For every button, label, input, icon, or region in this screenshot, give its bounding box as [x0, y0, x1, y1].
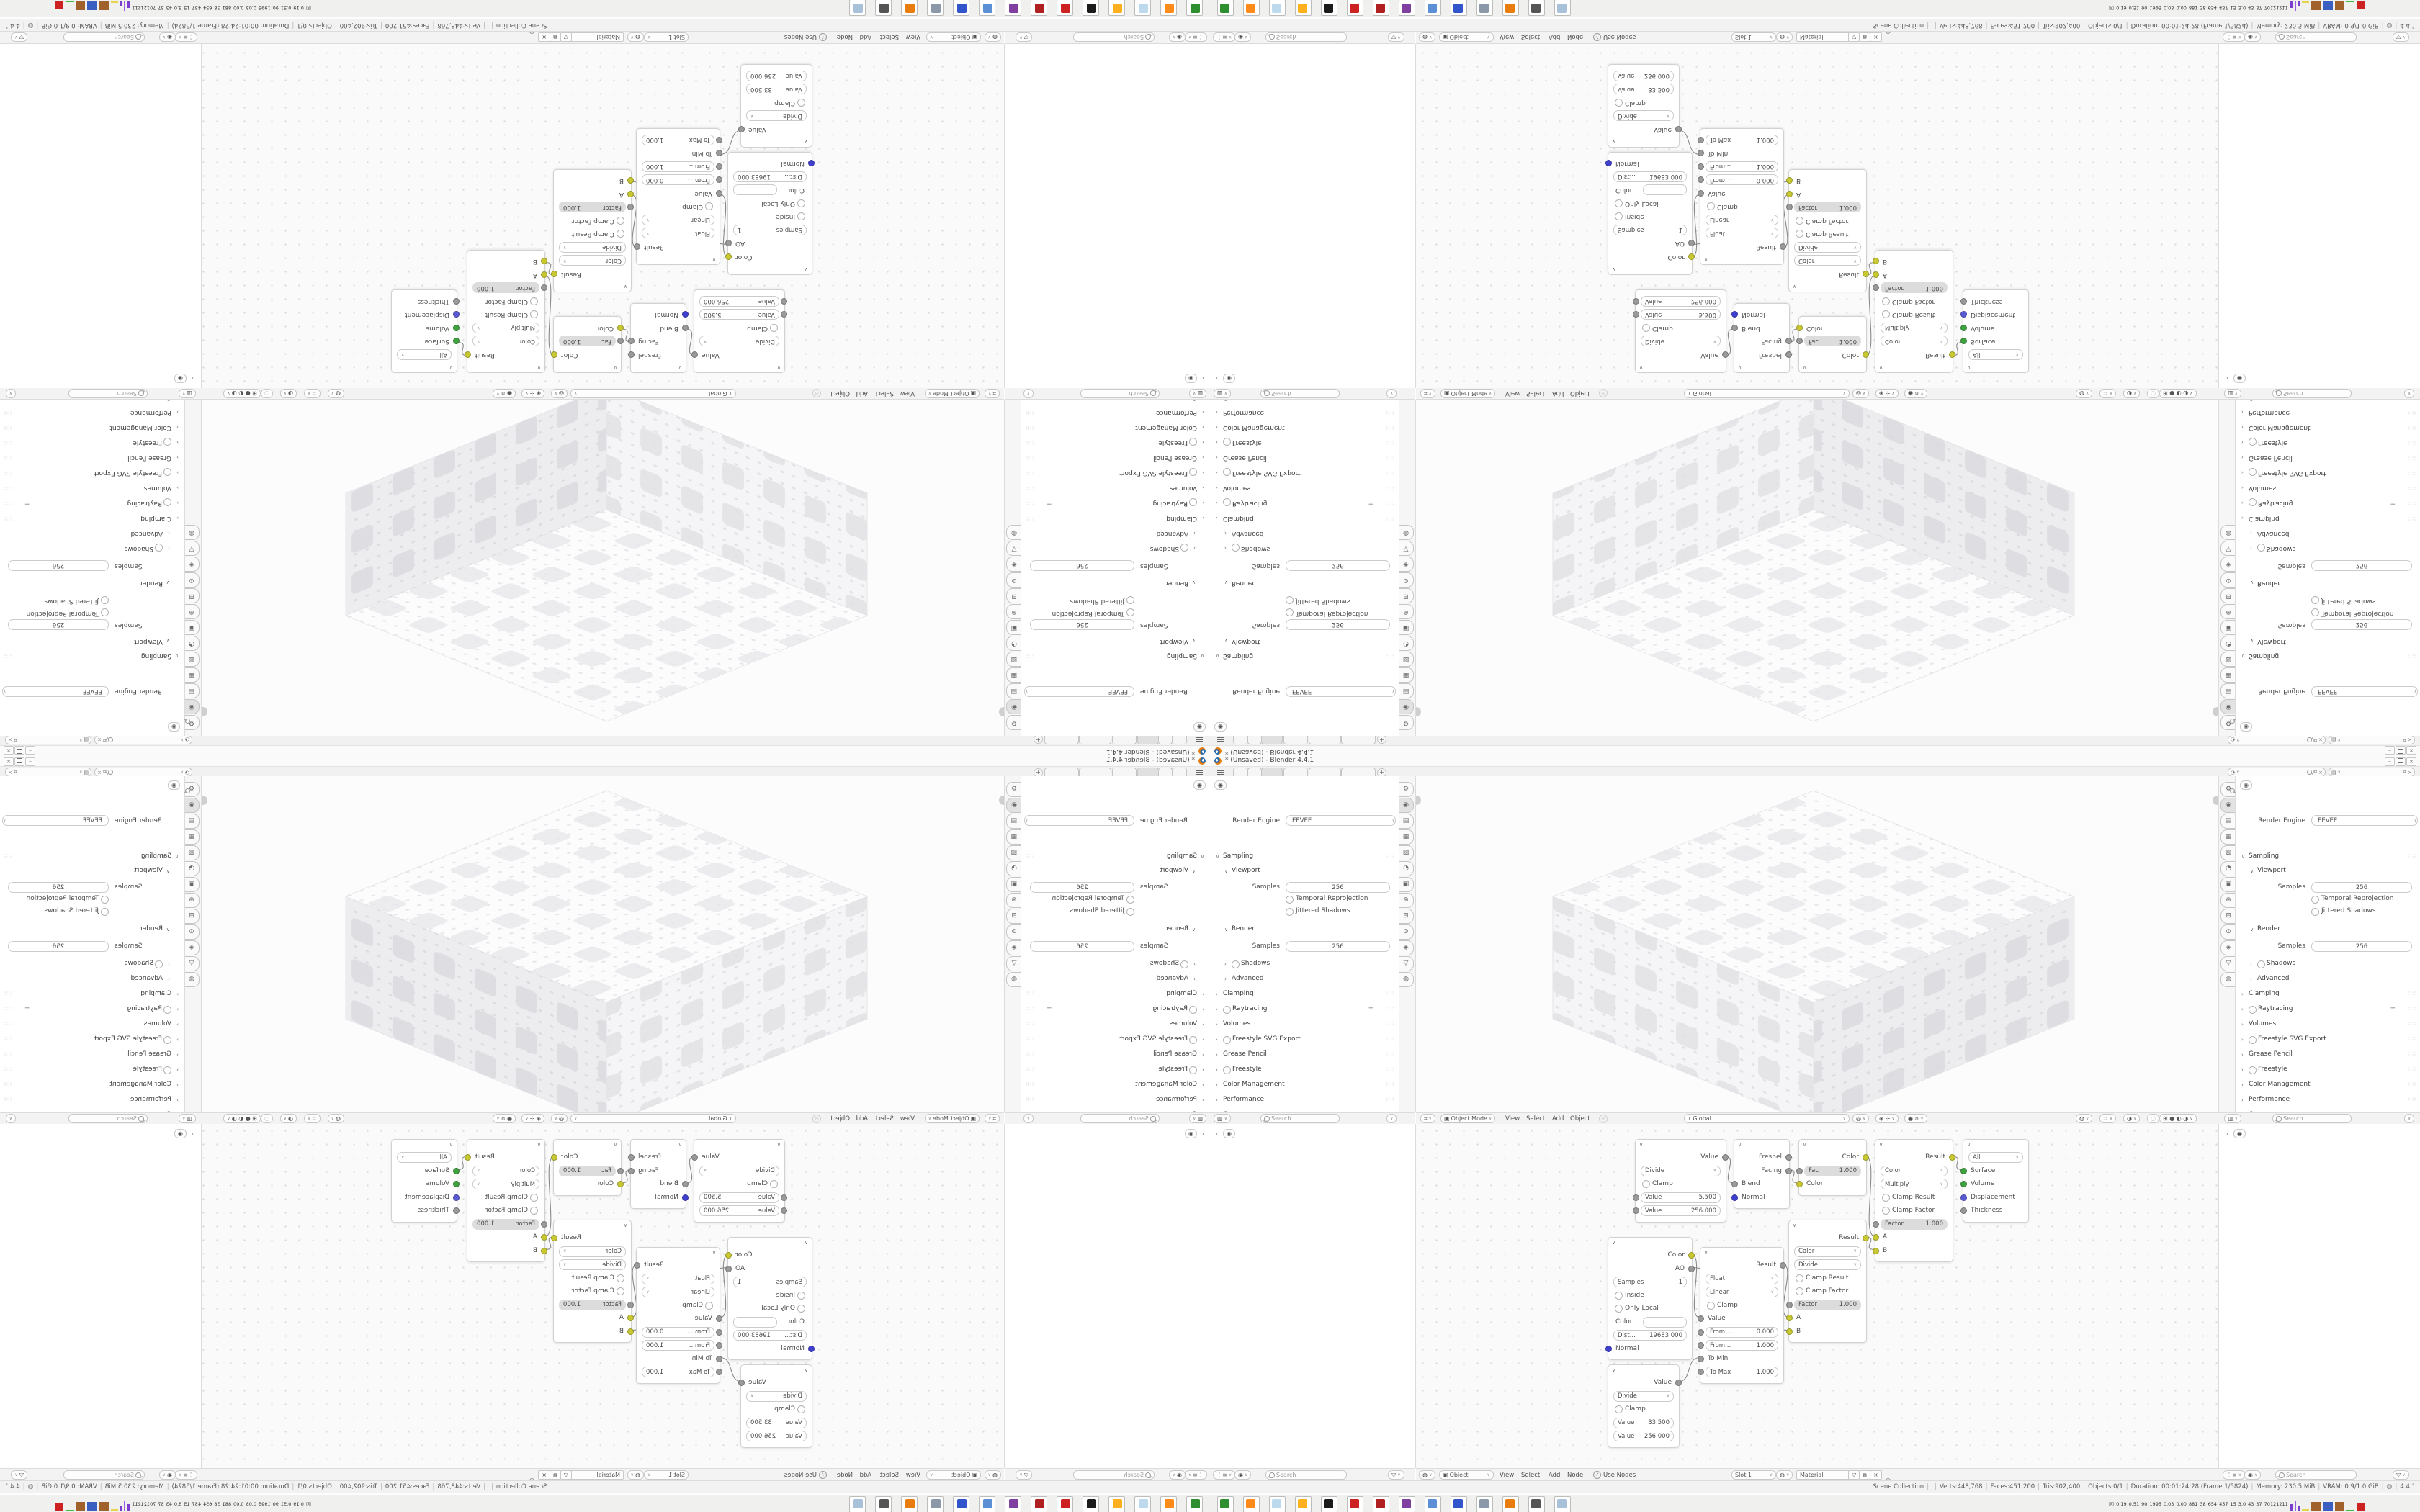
socket-input-blend[interactable]	[1731, 1181, 1738, 1187]
properties-tab-material[interactable]: ◍	[184, 972, 200, 987]
menu-select[interactable]: Select	[875, 1115, 894, 1122]
properties-tab-object-data[interactable]: ▽	[184, 541, 200, 556]
node-layer-weight[interactable]: ∨FresnelFacingBlendNormal	[1734, 303, 1790, 373]
gizmos-toggle[interactable]: ⊃∨	[2099, 389, 2116, 398]
expand-arrow-icon[interactable]: ›	[176, 469, 179, 475]
node-value-field[interactable]: Value256.000	[699, 1205, 779, 1216]
render-properties-icon[interactable]: ◉	[1185, 1129, 1197, 1138]
node-dropdown[interactable]: Divide∨	[1641, 336, 1721, 347]
properties-tab-particles[interactable]: ⊟	[2220, 909, 2236, 924]
checkbox[interactable]	[2311, 896, 2319, 904]
menu-select[interactable]: Select	[1526, 1115, 1545, 1122]
expand-arrow-icon[interactable]: ›	[1216, 454, 1218, 460]
node-layer-weight[interactable]: ∨FresnelFacingBlendNormal	[1734, 1139, 1790, 1209]
section-checkbox[interactable]	[163, 1006, 171, 1014]
node-value-field[interactable]: Factor1.000	[472, 283, 539, 294]
editor-type-button[interactable]: ▥∨	[2224, 1114, 2241, 1123]
expand-arrow-icon[interactable]: ›	[192, 1131, 194, 1137]
checkbox[interactable]	[101, 608, 109, 616]
node-collapse-icon[interactable]: ∨	[678, 1142, 682, 1148]
expand-arrow-icon[interactable]: ›	[2241, 515, 2244, 521]
xray-toggle[interactable]: ○	[261, 1114, 273, 1123]
use-nodes-checkbox[interactable]: ✓	[819, 1471, 827, 1479]
minimize-button[interactable]: –	[25, 757, 35, 766]
expand-arrow-icon[interactable]: ›	[2241, 1007, 2244, 1012]
copy-icon[interactable]: ⧉	[2403, 737, 2406, 743]
workspace-tab[interactable]	[1112, 735, 1137, 744]
material-slot-selector[interactable]: Slot 1∨	[644, 1470, 689, 1480]
node-value-field[interactable]: Dist...19683.000	[1613, 171, 1687, 182]
properties-tab-output[interactable]: ▤	[1006, 814, 1021, 829]
expand-arrow-icon[interactable]: ›	[1216, 1037, 1218, 1043]
properties-tab-physics[interactable]: ⊙	[1006, 572, 1021, 588]
menu-add[interactable]: Add	[856, 1115, 868, 1122]
properties-tab-view-layer[interactable]: ▦	[184, 829, 200, 845]
properties-tab-physics[interactable]: ⊙	[184, 572, 200, 588]
menu-node[interactable]: Node	[1567, 33, 1583, 40]
socket-input[interactable]	[1786, 1302, 1793, 1308]
section-checkbox[interactable]	[1223, 1006, 1231, 1014]
properties-tab-view-layer[interactable]: ▦	[1399, 667, 1414, 683]
socket-input[interactable]	[1698, 163, 1704, 170]
socket-output-result[interactable]	[465, 351, 471, 358]
collapse-arrow-icon[interactable]: ∨	[1224, 927, 1228, 932]
filter-button[interactable]: ▽∨	[1388, 1470, 1404, 1480]
node-checkbox[interactable]	[617, 1287, 624, 1295]
taskbar-icon-red-gear[interactable]	[1373, 0, 1389, 16]
section-checkbox[interactable]	[1223, 1036, 1231, 1044]
expand-arrow-icon[interactable]: ›	[1193, 961, 1196, 967]
socket-input-value[interactable]	[716, 190, 722, 197]
expand-arrow-icon[interactable]: ›	[1202, 991, 1204, 997]
expand-arrow-icon[interactable]: ›	[2250, 976, 2252, 982]
material-slot-selector[interactable]: Slot 1∨	[644, 32, 689, 42]
socket-input-to min[interactable]	[1698, 1356, 1704, 1362]
search-input[interactable]: Search	[1073, 1470, 1155, 1480]
taskbar-icon-gimp[interactable]	[1528, 1496, 1545, 1512]
workspace-tab[interactable]	[1283, 735, 1308, 744]
expand-arrow-icon[interactable]: ›	[1202, 485, 1204, 490]
node-collapse-icon[interactable]: ∨	[537, 364, 541, 370]
socket-input-volume[interactable]	[453, 325, 460, 331]
editor-type-button[interactable]: ⋮≡∨	[1185, 32, 1207, 42]
node-value-field[interactable]: Fac1.000	[1804, 1166, 1861, 1176]
section-checkbox[interactable]	[1189, 438, 1197, 446]
expand-arrow-icon[interactable]: ›	[2250, 530, 2252, 536]
expand-arrow-icon[interactable]: ›	[1224, 961, 1227, 967]
socket-output-result[interactable]	[1780, 1262, 1786, 1269]
properties-tab-scene[interactable]: ▧	[2220, 845, 2236, 860]
expand-arrow-icon[interactable]: ›	[176, 1097, 179, 1103]
node-math-divide-2[interactable]: ∨ValueDivide∨ClampValue33.500Value256.00…	[740, 1364, 812, 1448]
mode-selector[interactable]: ▣ Object Mode∨	[1440, 389, 1495, 398]
properties-tab-object-data[interactable]: ▽	[1399, 541, 1414, 556]
editor-type-button[interactable]: ◍∨	[1419, 32, 1435, 42]
node-layer-weight[interactable]: ∨FresnelFacingBlendNormal	[630, 1139, 686, 1209]
node-checkbox[interactable]	[705, 1302, 713, 1310]
close-button[interactable]: ×	[4, 746, 14, 755]
properties-tab-view-layer[interactable]: ▦	[1006, 829, 1021, 845]
node-value-field[interactable]: Factor1.000	[559, 202, 626, 213]
expand-arrow-icon[interactable]: ›	[2241, 409, 2244, 415]
socket-output-fresnel[interactable]	[1785, 351, 1792, 358]
shader-editor[interactable]: ∨ValueDivide∨ClampValue5.500Value256.000…	[202, 1124, 1004, 1468]
node-dropdown[interactable]: All∨	[1968, 349, 2023, 360]
node-value-field[interactable]: Fac1.000	[1804, 336, 1861, 347]
workspace-tab[interactable]	[1079, 735, 1111, 744]
socket-output-value[interactable]	[1675, 126, 1682, 132]
taskbar-icon-floppy-64[interactable]	[1451, 0, 1467, 16]
socket-input[interactable]	[716, 1329, 722, 1336]
expand-arrow-icon[interactable]: ›	[2226, 1131, 2228, 1137]
node-checkbox[interactable]	[797, 1292, 805, 1300]
collapse-arrow-icon[interactable]: ∨	[1224, 580, 1228, 585]
search-input[interactable]: Search	[1080, 389, 1160, 398]
socket-input-normal[interactable]	[808, 161, 815, 167]
proportional-editing-selector[interactable]: ◉ ∩∨	[1904, 389, 1927, 398]
node-value-field[interactable]: Value33.500	[746, 84, 807, 95]
node-mix-multiply[interactable]: ∨ResultColor∨Multiply∨Clamp ResultClamp …	[467, 250, 545, 373]
checkbox[interactable]	[1126, 596, 1134, 604]
node-collapse-icon[interactable]: ∨	[805, 1240, 808, 1246]
socket-input-surface[interactable]	[453, 338, 460, 345]
taskbar-icon-terminal[interactable]	[1186, 1496, 1203, 1512]
viewport-3d[interactable]	[1416, 400, 2218, 736]
editor-type-button[interactable]: ▥∨	[179, 1114, 196, 1123]
expand-arrow-icon[interactable]: ›	[1224, 976, 1227, 982]
collapse-arrow-icon[interactable]: ∨	[175, 652, 179, 658]
node-value-field[interactable]: To Max1.000	[1706, 135, 1778, 145]
properties-tab-modifiers[interactable]: ⊕	[184, 893, 200, 908]
properties-tab-physics[interactable]: ⊙	[1006, 924, 1021, 940]
socket-input[interactable]	[627, 1302, 634, 1308]
expand-arrow-icon[interactable]: ›	[2241, 991, 2244, 997]
socket-input-volume[interactable]	[1960, 1181, 1967, 1187]
expand-arrow-icon[interactable]: ›	[1202, 1037, 1204, 1043]
socket-output-facing[interactable]	[1785, 1168, 1792, 1174]
render-properties-icon[interactable]: ◉	[1223, 1129, 1235, 1138]
socket-output-color[interactable]	[551, 1154, 557, 1161]
field-value[interactable]: 256	[2311, 941, 2412, 952]
socket-input-surface[interactable]	[1960, 1168, 1967, 1174]
material-name-field[interactable]: Material	[568, 32, 624, 42]
field-value[interactable]: 256	[8, 882, 109, 893]
render-properties-icon[interactable]: ◉	[2233, 374, 2246, 383]
expand-arrow-icon[interactable]: ›	[176, 424, 179, 430]
node-checkbox[interactable]	[797, 213, 805, 221]
shader-type-selector[interactable]: ▣ Object∨	[1439, 32, 1494, 42]
proportional-editing-selector[interactable]: ◉ ∩∨	[493, 389, 516, 398]
collapse-arrow-icon[interactable]: ∨	[175, 854, 179, 860]
section-checkbox[interactable]	[1223, 498, 1231, 506]
node-checkbox[interactable]	[617, 1274, 624, 1282]
socket-output-value[interactable]	[691, 351, 698, 358]
taskbar-icon-red-app[interactable]	[1347, 1496, 1363, 1512]
socket-output-color[interactable]	[725, 1252, 732, 1259]
field-value[interactable]: 256	[1286, 882, 1390, 893]
overlays-toggle[interactable]: ◑∨	[280, 1114, 297, 1123]
taskbar-icon-red-gear[interactable]	[1373, 1496, 1389, 1512]
menu-select[interactable]: Select	[875, 390, 894, 397]
expand-arrow-icon[interactable]: ›	[176, 454, 179, 460]
pin-icon[interactable]	[108, 770, 113, 775]
socket-input[interactable]	[716, 1369, 722, 1375]
node-map-range[interactable]: ∨ResultFloat∨Linear∨ClampValueFrom ...0.…	[636, 129, 720, 266]
node-checkbox[interactable]	[1796, 230, 1803, 238]
node-value-field[interactable]: From ...0.000	[642, 175, 714, 186]
collapse-arrow-icon[interactable]: ∨	[166, 580, 170, 585]
node-dropdown[interactable]: All∨	[1968, 1152, 2023, 1163]
workspace-tab[interactable]	[1247, 735, 1262, 744]
node-value-field[interactable]: Value5.500	[1641, 1192, 1721, 1203]
checkbox[interactable]	[2311, 596, 2319, 604]
collapse-arrow-icon[interactable]: ∨	[2250, 638, 2254, 644]
node-math-divide-1[interactable]: ∨ValueDivide∨ClampValue5.500Value256.000	[694, 290, 785, 374]
node-value-field[interactable]: To Max1.000	[642, 135, 714, 145]
shader-editor[interactable]: ∨ValueDivide∨ClampValue5.500Value256.000…	[1416, 44, 2218, 388]
properties-tab-scene[interactable]: ▧	[1399, 845, 1414, 860]
window-titlebar[interactable]: * (Unsaved) - Blender 4.4.1 – ×	[0, 756, 1210, 767]
node-material-output[interactable]: ∨All∨SurfaceVolumeDisplacementThickness	[391, 1139, 457, 1223]
node-checkbox[interactable]	[705, 203, 713, 211]
node-collapse-icon[interactable]: ∨	[624, 1223, 627, 1228]
menu-view[interactable]: View	[1500, 33, 1514, 40]
socket-input-thickness[interactable]	[1960, 1207, 1967, 1214]
overlays-toggle[interactable]: ◑∨	[2123, 1114, 2140, 1123]
taskbar-icon-log-doc[interactable]	[849, 0, 866, 16]
search-input[interactable]: Search	[2275, 1470, 2357, 1480]
socket-output-ao[interactable]	[725, 1266, 732, 1272]
node-checkbox[interactable]	[1615, 1405, 1623, 1413]
collapse-arrow-icon[interactable]: ∨	[166, 927, 170, 932]
window-titlebar[interactable]: * (Unsaved) - Blender 4.4.1 – ×	[1210, 745, 2420, 756]
node-value-field[interactable]: Value256.000	[746, 1431, 807, 1441]
expand-arrow-icon[interactable]: ›	[176, 1037, 179, 1043]
taskbar-icon-floppy-64[interactable]	[953, 1496, 969, 1512]
socket-input-b[interactable]	[627, 178, 634, 184]
properties-tab-object[interactable]: ▣	[2220, 620, 2236, 635]
properties-tab-render[interactable]: ◉	[2220, 699, 2236, 714]
proportional-editing-selector[interactable]: ◉ ∩∨	[1904, 1114, 1927, 1123]
properties-tab-output[interactable]: ▤	[184, 683, 200, 698]
socket-input-a[interactable]	[627, 1315, 634, 1321]
toolbar-collapse-handle[interactable]	[999, 796, 1004, 805]
socket-input[interactable]	[1698, 1329, 1704, 1336]
properties-tab-tool[interactable]: ⚙	[1006, 782, 1021, 797]
expand-arrow-icon[interactable]: ›	[1216, 1052, 1218, 1058]
properties-tab-render[interactable]: ◉	[1399, 798, 1414, 813]
node-collapse-icon[interactable]: ∨	[712, 1250, 716, 1256]
node-checkbox[interactable]	[530, 1194, 538, 1202]
taskbar-icon-firefox-2[interactable]	[1108, 1496, 1125, 1512]
socket-input[interactable]	[617, 338, 624, 345]
properties-tab-tool[interactable]: ⚙	[1399, 782, 1414, 797]
socket-output-result[interactable]	[634, 1262, 640, 1269]
taskbar-icon-blender[interactable]	[1502, 0, 1519, 16]
taskbar-icon-firefox-2[interactable]	[1295, 0, 1312, 16]
socket-input[interactable]	[716, 163, 722, 170]
taskbar-icon-notes[interactable]	[1134, 0, 1151, 16]
fake-user-button[interactable]: ▽	[560, 1470, 572, 1480]
socket-input-normal[interactable]	[682, 1194, 689, 1201]
shader-type-selector[interactable]: ▣ Object∨	[926, 1470, 981, 1480]
render-engine-dropdown[interactable]: EEVEE∨	[1024, 815, 1134, 826]
expand-arrow-icon[interactable]: ›	[168, 976, 170, 982]
collapse-arrow-icon[interactable]: ∨	[1192, 580, 1196, 585]
node-dropdown[interactable]: Divide∨	[1794, 242, 1861, 253]
properties-tab-scene[interactable]: ▧	[184, 845, 200, 860]
socket-input[interactable]	[1698, 137, 1704, 143]
render-properties-icon[interactable]: ◉	[1223, 374, 1235, 383]
expand-arrow-icon[interactable]: ›	[2250, 961, 2252, 967]
properties-tab-constraints[interactable]: ◈	[184, 940, 200, 955]
node-value-field[interactable]: Value5.500	[699, 1192, 779, 1203]
properties-tab-object-data[interactable]: ▽	[1006, 956, 1021, 971]
node-value-field[interactable]: From ...0.000	[642, 1327, 714, 1338]
close-icon[interactable]: ×	[2318, 737, 2323, 743]
node-math-divide-2[interactable]: ∨ValueDivide∨ClampValue33.500Value256.00…	[1608, 65, 1680, 148]
use-nodes-checkbox[interactable]: ✓	[819, 33, 827, 41]
maximize-button[interactable]	[14, 746, 24, 755]
socket-input[interactable]	[541, 1221, 547, 1228]
properties-tab-modifiers[interactable]: ⊕	[1006, 893, 1021, 908]
menu-add[interactable]: Add	[1552, 390, 1564, 397]
node-map-range[interactable]: ∨ResultFloat∨Linear∨ClampValueFrom ...0.…	[636, 1247, 720, 1384]
field-value[interactable]: 256	[1030, 882, 1134, 893]
node-checkbox[interactable]	[797, 199, 805, 207]
checkbox[interactable]	[1286, 896, 1294, 904]
socket-input[interactable]	[716, 137, 722, 143]
socket-output-result[interactable]	[1949, 1154, 1955, 1161]
properties-tab-particles[interactable]: ⊟	[2220, 588, 2236, 603]
checkbox[interactable]	[101, 596, 109, 604]
pivot-point-selector[interactable]: ◎∨	[1852, 389, 1869, 398]
expand-arrow-icon[interactable]: ›	[168, 545, 170, 551]
section-checkbox[interactable]	[163, 468, 171, 476]
node-value-field[interactable]: Factor1.000	[1881, 1219, 1948, 1230]
node-dropdown[interactable]: Float∨	[1706, 1274, 1778, 1284]
socket-input[interactable]	[1796, 1168, 1803, 1174]
node-mix-multiply[interactable]: ∨ResultColor∨Multiply∨Clamp ResultClamp …	[1875, 250, 1953, 373]
socket-input-value[interactable]	[1698, 190, 1704, 197]
hamburger-menu-icon[interactable]	[1217, 742, 1224, 743]
search-input[interactable]: Search	[1260, 389, 1340, 398]
expand-arrow-icon[interactable]: ›	[2241, 1097, 2244, 1103]
scene-selector[interactable]: ◔∨ ⧉ ×	[2228, 735, 2326, 744]
pin-icon[interactable]	[2230, 788, 2235, 793]
taskbar-icon-blender[interactable]	[1502, 1496, 1519, 1512]
section-checkbox[interactable]	[2249, 438, 2257, 446]
render-icon-dropdown[interactable]: ◉∨	[1234, 1470, 1251, 1480]
close-button[interactable]: ×	[2406, 757, 2416, 766]
workspace-tab[interactable]	[1309, 735, 1341, 744]
node-dropdown[interactable]: Divide∨	[1641, 1166, 1721, 1176]
node-collapse-icon[interactable]: ∨	[624, 284, 627, 289]
socket-input-to min[interactable]	[716, 1356, 722, 1362]
taskbar-icon-red-app[interactable]	[1057, 1496, 1073, 1512]
socket-input[interactable]	[1698, 1369, 1704, 1375]
taskbar-icon-terminal[interactable]	[1217, 1496, 1234, 1512]
editor-type-button[interactable]: ⋮≡∨	[1185, 1470, 1207, 1480]
taskbar-icon-log-doc[interactable]	[849, 1496, 866, 1512]
socket-input-displacement[interactable]	[1960, 1194, 1967, 1201]
socket-input[interactable]	[627, 204, 634, 211]
node-dropdown[interactable]: Color∨	[559, 1246, 626, 1257]
taskbar-icon-owl-app[interactable]	[1399, 1496, 1415, 1512]
properties-tab-world[interactable]: ◔	[1399, 636, 1414, 651]
node-dropdown[interactable]: Float∨	[642, 228, 714, 239]
node-dropdown[interactable]: Linear∨	[642, 1287, 714, 1297]
node-invert-color[interactable]: ∨ColorFac1.000Color	[1798, 1139, 1867, 1196]
render-properties-icon[interactable]: ◉	[174, 1129, 187, 1138]
socket-input-a[interactable]	[541, 1234, 547, 1241]
menu-node[interactable]: Node	[1567, 1472, 1583, 1479]
render-properties-icon[interactable]: ◉	[2233, 1129, 2246, 1138]
node-collapse-icon[interactable]: ∨	[712, 256, 716, 262]
maximize-button[interactable]	[2396, 757, 2406, 766]
collapse-arrow-icon[interactable]: ∨	[1216, 854, 1219, 860]
color-swatch-field[interactable]	[1643, 185, 1687, 196]
hamburger-menu-icon[interactable]	[1196, 770, 1203, 771]
xray-toggle[interactable]: ○	[2147, 389, 2159, 398]
checkbox[interactable]	[1126, 608, 1134, 616]
taskbar-icon-gimp-dark[interactable]	[1083, 1496, 1099, 1512]
node-value-field[interactable]: From...1.000	[642, 1340, 714, 1351]
socket-output-color[interactable]	[1863, 1154, 1869, 1161]
properties-tab-constraints[interactable]: ◈	[184, 557, 200, 572]
properties-tab-world[interactable]: ◔	[184, 636, 200, 651]
socket-output-color[interactable]	[1863, 351, 1869, 358]
socket-input-a[interactable]	[1786, 1315, 1793, 1321]
node-mix-divide[interactable]: ∨ResultColor∨Divide∨Clamp ResultClamp Fa…	[1788, 1220, 1867, 1343]
editor-type-button[interactable]: ⌗∨	[985, 1114, 1000, 1123]
editor-type-button[interactable]: ▥∨	[1189, 389, 1206, 398]
node-ambient-occlusion[interactable]: ∨ColorAOSamples1InsideOnly LocalColorDis…	[727, 152, 812, 275]
taskbar-icon-owl-app[interactable]	[1005, 0, 1021, 16]
gizmos-toggle[interactable]: ⊃∨	[304, 389, 321, 398]
section-checkbox[interactable]	[1189, 1036, 1197, 1044]
shading-mode-buttons[interactable]: ⊞ ● ◐ ◑∨	[2159, 1114, 2197, 1123]
expand-arrow-icon[interactable]: ›	[1193, 976, 1196, 982]
section-checkbox[interactable]	[1189, 498, 1197, 506]
node-value-field[interactable]: Fac1.000	[559, 336, 616, 347]
node-value-field[interactable]: Value256.000	[699, 296, 779, 307]
sidebar-collapse-handle[interactable]	[202, 796, 207, 805]
section-checkbox[interactable]	[155, 960, 163, 968]
search-input[interactable]: Search	[1265, 32, 1347, 42]
checkbox[interactable]	[101, 908, 109, 916]
field-value[interactable]: 256	[2311, 619, 2412, 630]
node-value-field[interactable]: Value256.000	[1613, 71, 1674, 81]
expand-arrow-icon[interactable]: ›	[1216, 409, 1218, 415]
node-map-range[interactable]: ∨ResultFloat∨Linear∨ClampValueFrom ...0.…	[1700, 129, 1784, 266]
copy-icon[interactable]: ⧉	[2313, 769, 2317, 775]
editor-type-button[interactable]: ⋮≡∨	[2223, 1470, 2245, 1480]
editor-type-button[interactable]: ◍∨	[985, 1470, 1001, 1480]
properties-tab-scene[interactable]: ▧	[1399, 652, 1414, 667]
expand-arrow-icon[interactable]: ›	[2241, 469, 2244, 475]
node-value-field[interactable]: Factor1.000	[559, 1300, 626, 1310]
pin-icon[interactable]	[2307, 770, 2312, 775]
close-button[interactable]: ×	[4, 757, 14, 766]
socket-input-to min[interactable]	[716, 150, 722, 157]
socket-input-a[interactable]	[1873, 1234, 1879, 1241]
material-slot-selector[interactable]: Slot 1∨	[1731, 32, 1776, 42]
node-value-field[interactable]: From...1.000	[642, 161, 714, 172]
node-dropdown[interactable]: Divide∨	[559, 1259, 626, 1270]
socket-output-value[interactable]	[691, 1154, 698, 1161]
pin-icon[interactable]	[2307, 737, 2312, 742]
